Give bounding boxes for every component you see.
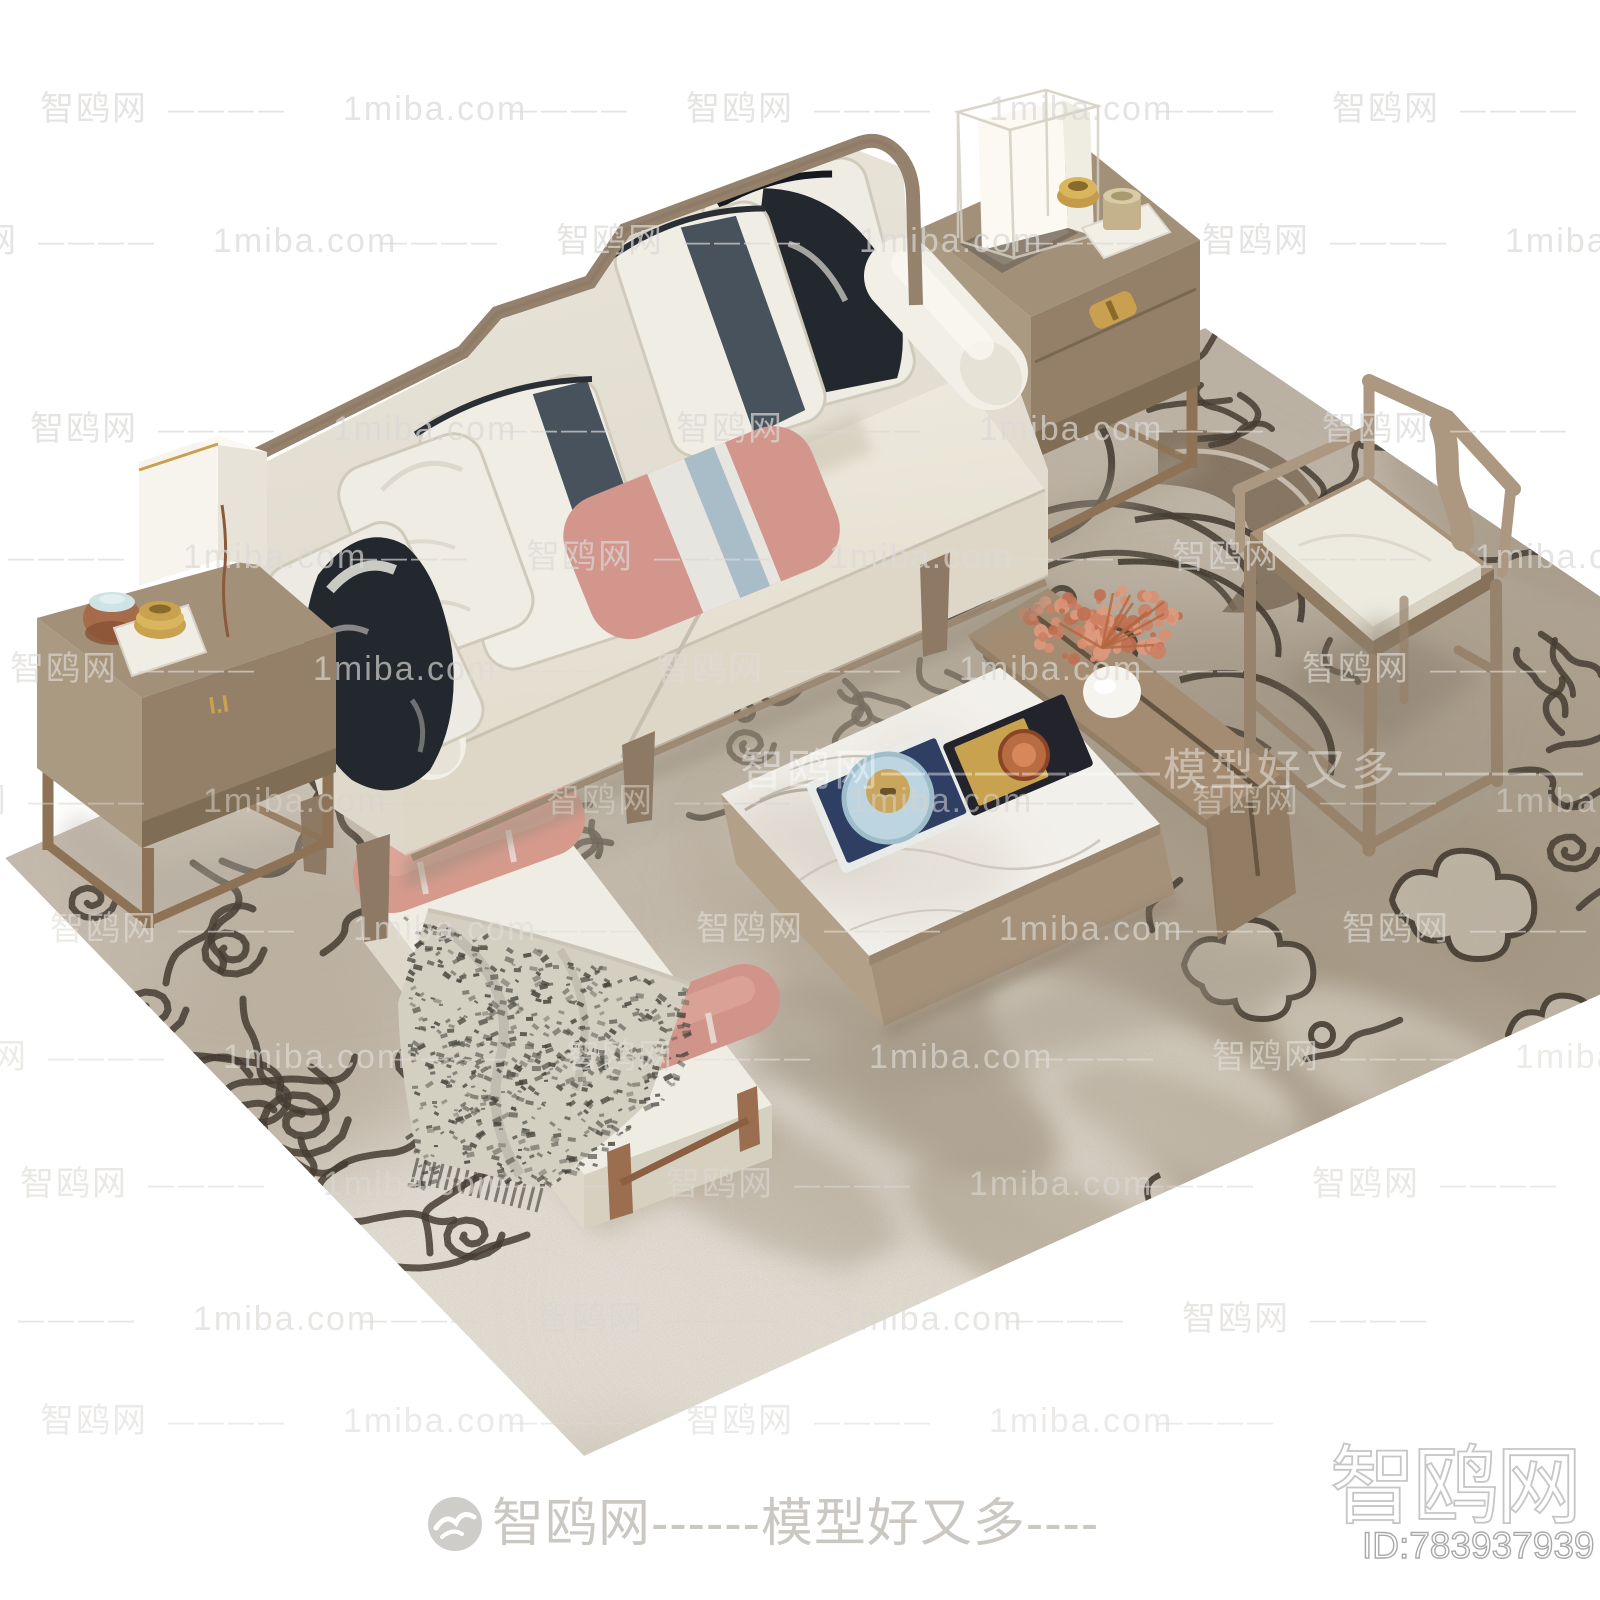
svg-text:1miba.com: 1miba.com [999, 910, 1183, 948]
svg-text:――――: ―――― [1037, 1042, 1157, 1072]
svg-text:智鸥网: 智鸥网 [0, 782, 8, 820]
svg-text:――――: ―――― [654, 542, 774, 572]
svg-text:――――: ―――― [1127, 654, 1247, 684]
svg-text:1miba.com: 1miba.com [343, 90, 527, 128]
svg-text:――――: ―――― [784, 654, 904, 684]
svg-text:1miba.com: 1miba.com [959, 650, 1143, 688]
svg-text:――――: ―――― [511, 94, 631, 124]
svg-text:1miba.com: 1miba.com [989, 90, 1173, 128]
svg-text:智鸥网: 智鸥网 [556, 222, 664, 260]
svg-text:――――: ―――― [1440, 1169, 1560, 1199]
svg-text:――――: ―――― [1147, 414, 1267, 444]
svg-text:――――: ―――― [511, 1406, 631, 1436]
svg-text:智鸥网: 智鸥网 [656, 650, 764, 688]
svg-text:――――: ―――― [501, 414, 621, 444]
svg-text:1miba.com: 1miba.com [839, 1300, 1023, 1338]
svg-text:智鸥网: 智鸥网 [1342, 910, 1450, 948]
svg-text:――――: ―――― [521, 914, 641, 944]
svg-text:――――: ―――― [18, 1304, 138, 1334]
svg-text:――――: ―――― [148, 1169, 268, 1199]
svg-text:智鸥网: 智鸥网 [676, 410, 784, 448]
svg-text:――――: ―――― [1157, 1406, 1277, 1436]
svg-text:智鸥网――――――模型好又多――――: 智鸥网――――――模型好又多―――― [740, 746, 1586, 795]
svg-text:智鸥网: 智鸥网 [1332, 90, 1440, 128]
svg-text:智鸥网: 智鸥网 [0, 1038, 28, 1076]
svg-text:1miba.com: 1miba.com [859, 222, 1043, 260]
svg-text:1miba.com: 1miba.com [193, 1300, 377, 1338]
svg-text:智鸥网: 智鸥网 [1322, 410, 1430, 448]
svg-text:――――: ―――― [664, 1304, 784, 1334]
svg-text:――――: ―――― [481, 654, 601, 684]
svg-text:――――: ―――― [794, 1169, 914, 1199]
svg-text:智鸥网: 智鸥网 [1330, 1439, 1579, 1535]
svg-text:――――: ―――― [694, 1042, 814, 1072]
svg-text:智鸥网: 智鸥网 [10, 650, 118, 688]
svg-text:智鸥网: 智鸥网 [1312, 1165, 1420, 1203]
svg-text:――――: ―――― [824, 914, 944, 944]
svg-text:――――: ―――― [168, 94, 288, 124]
svg-text:智鸥网: 智鸥网 [686, 90, 794, 128]
svg-text:――――: ―――― [8, 542, 128, 572]
svg-text:――――: ―――― [28, 786, 148, 816]
svg-text:智鸥网: 智鸥网 [0, 222, 18, 260]
svg-text:1miba.com: 1miba.com [213, 222, 397, 260]
svg-text:1miba.com: 1miba.com [829, 538, 1013, 576]
svg-text:――――: ―――― [361, 1304, 481, 1334]
svg-text:――――: ―――― [1340, 1042, 1460, 1072]
svg-text:――――: ―――― [381, 226, 501, 256]
svg-text:――――: ―――― [178, 914, 298, 944]
svg-text:智鸥网: 智鸥网 [1302, 650, 1410, 688]
svg-text:智鸥网: 智鸥网 [566, 1038, 674, 1076]
svg-text:智鸥网: 智鸥网 [1212, 1038, 1320, 1076]
svg-text:――――: ―――― [1007, 1304, 1127, 1334]
svg-text:智鸥网: 智鸥网 [696, 910, 804, 948]
svg-text:1miba.com: 1miba.com [989, 1402, 1173, 1440]
svg-text:――――: ―――― [351, 542, 471, 572]
svg-text:智鸥网: 智鸥网 [1172, 538, 1280, 576]
svg-text:智鸥网: 智鸥网 [546, 782, 654, 820]
svg-text:――――: ―――― [168, 1406, 288, 1436]
svg-text:――――: ―――― [1460, 94, 1580, 124]
svg-text:1miba.com: 1miba.com [323, 1165, 507, 1203]
svg-text:1miba.com: 1miba.com [1505, 222, 1600, 260]
svg-text:智鸥网: 智鸥网 [40, 90, 148, 128]
svg-text:――――: ―――― [1430, 654, 1550, 684]
svg-text:智鸥网: 智鸥网 [1182, 1300, 1290, 1338]
svg-text:――――: ―――― [38, 226, 158, 256]
svg-text:1miba.com: 1miba.com [1515, 1038, 1600, 1076]
svg-text:ID:783937939: ID:783937939 [1362, 1525, 1594, 1566]
svg-text:智鸥网: 智鸥网 [30, 410, 138, 448]
svg-text:智鸥网: 智鸥网 [40, 1402, 148, 1440]
svg-text:1miba.com: 1miba.com [333, 410, 517, 448]
svg-text:――――: ―――― [1300, 542, 1420, 572]
svg-text:――――: ―――― [371, 786, 491, 816]
svg-text:――――: ―――― [997, 542, 1117, 572]
svg-text:智鸥网: 智鸥网 [536, 1300, 644, 1338]
svg-text:I.I: I.I [207, 690, 231, 720]
svg-text:――――: ―――― [1137, 1169, 1257, 1199]
svg-text:1miba.com: 1miba.com [183, 538, 367, 576]
svg-text:智鸥网: 智鸥网 [526, 538, 634, 576]
svg-text:智鸥网: 智鸥网 [686, 1402, 794, 1440]
svg-text:智鸥网: 智鸥网 [20, 1165, 128, 1203]
svg-text:――――: ―――― [1310, 1304, 1430, 1334]
svg-text:――――: ―――― [491, 1169, 611, 1199]
svg-text:――――: ―――― [1470, 914, 1590, 944]
svg-text:1miba.com: 1miba.com [969, 1165, 1153, 1203]
svg-text:1miba.com: 1miba.com [869, 1038, 1053, 1076]
svg-text:1miba.com: 1miba.com [313, 650, 497, 688]
svg-text:――――: ―――― [814, 94, 934, 124]
svg-text:智鸥网: 智鸥网 [50, 910, 158, 948]
svg-text:智鸥网: 智鸥网 [666, 1165, 774, 1203]
svg-text:――――: ―――― [391, 1042, 511, 1072]
svg-text:――――: ―――― [814, 1406, 934, 1436]
svg-text:――――: ―――― [158, 414, 278, 444]
svg-text:――――: ―――― [138, 654, 258, 684]
svg-text:1miba.com: 1miba.com [979, 410, 1163, 448]
svg-text:――――: ―――― [1027, 226, 1147, 256]
svg-text:智鸥网: 智鸥网 [1202, 222, 1310, 260]
svg-text:――――: ―――― [1330, 226, 1450, 256]
svg-text:1miba.com: 1miba.com [343, 1402, 527, 1440]
svg-text:1miba.com: 1miba.com [223, 1038, 407, 1076]
svg-text:智鸥网------模型好又多----: 智鸥网------模型好又多---- [492, 1495, 1099, 1553]
svg-text:1miba.com: 1miba.com [353, 910, 537, 948]
svg-text:――――: ―――― [48, 1042, 168, 1072]
svg-text:――――: ―――― [1450, 414, 1570, 444]
svg-text:――――: ―――― [684, 226, 804, 256]
svg-text:――――: ―――― [804, 414, 924, 444]
svg-text:1miba.com: 1miba.com [203, 782, 387, 820]
svg-text:1miba.com: 1miba.com [1475, 538, 1600, 576]
svg-text:――――: ―――― [1157, 94, 1277, 124]
svg-text:――――: ―――― [1167, 914, 1287, 944]
